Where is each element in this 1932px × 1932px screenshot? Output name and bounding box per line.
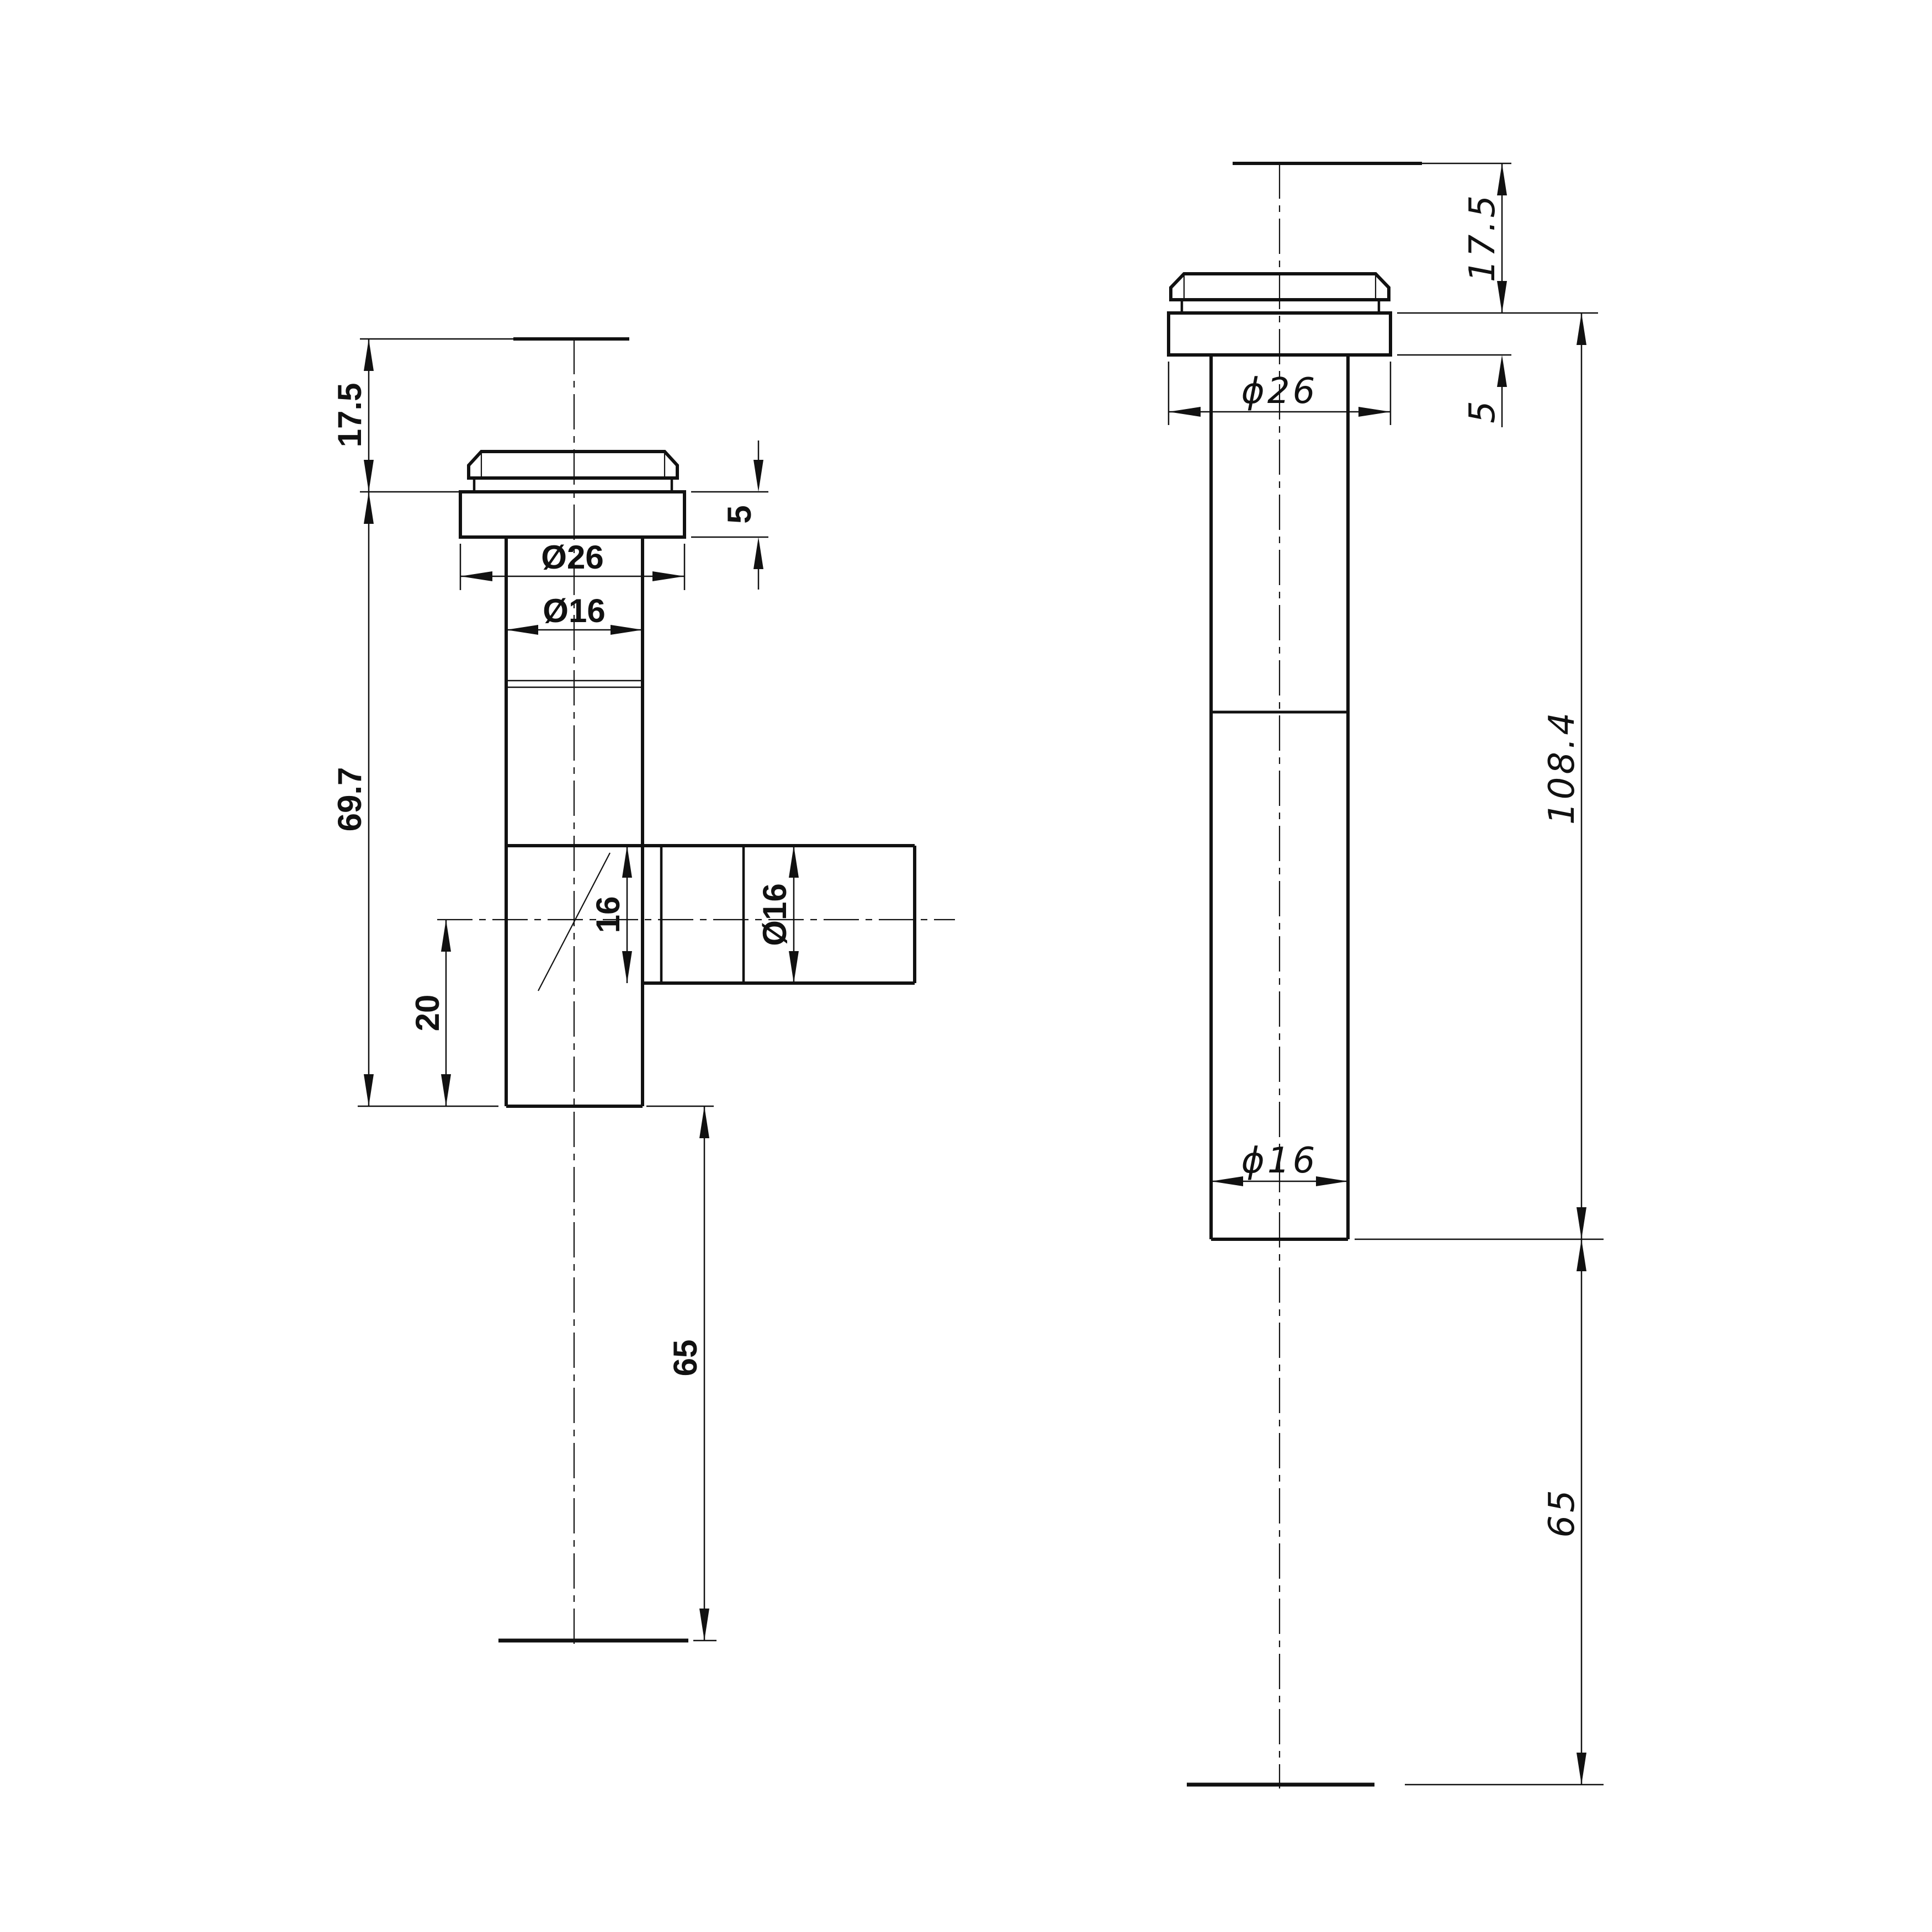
dim-label-dia16-right: ϕ16: [1241, 1140, 1318, 1181]
drawing-background: [0, 0, 1932, 1932]
dim-label-65-left: 65: [667, 1340, 704, 1377]
dim-label-17-5-right: 17.5: [1462, 193, 1503, 283]
dim-label-dia26-right: ϕ26: [1241, 371, 1318, 412]
dim-label-20: 20: [409, 995, 446, 1032]
dim-label-69-7: 69.7: [331, 767, 368, 832]
dim-label-dia26-left: Ø26: [541, 539, 603, 576]
dim-label-17-5-left: 17.5: [331, 383, 368, 448]
dim-label-108-4: 108.4: [1542, 710, 1583, 825]
drawing-page: 17.569.72065516Ø16Ø26Ø1617.55108.465ϕ26ϕ…: [0, 0, 1932, 1932]
dim-label-16: 16: [590, 896, 627, 933]
dim-label-65-right: 65: [1542, 1487, 1583, 1537]
dim-label-dia16-branch: Ø16: [756, 883, 793, 946]
dim-label-5-right: 5: [1462, 398, 1503, 423]
drawing-canvas: 17.569.72065516Ø16Ø26Ø1617.55108.465ϕ26ϕ…: [0, 0, 1932, 1932]
dim-label-5-left: 5: [721, 505, 758, 523]
dim-label-dia16-left: Ø16: [543, 592, 605, 629]
